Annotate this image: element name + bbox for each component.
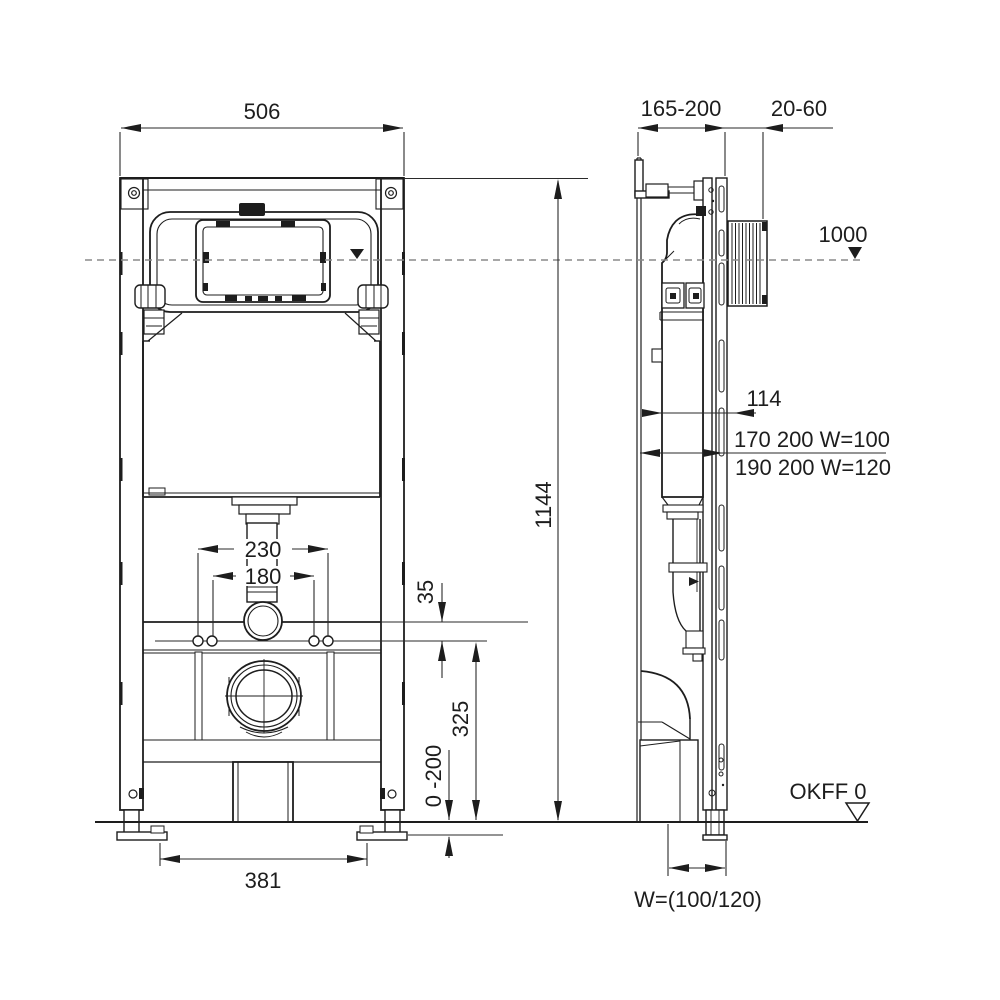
front-view [117,178,528,840]
frame-rail-side [703,178,727,810]
dim-label-outlet-width: W=(100/120) [634,887,762,912]
level-marker-icon [848,247,862,259]
corner-screw-icon [129,188,397,199]
dim-label-foot-adjust: 0 -200 [421,745,446,807]
dim-label-spacing-inner: 180 [245,564,282,589]
access-window [150,203,378,312]
spec-line-2: 190 200 W=120 [735,455,891,480]
wall-spacer-ribbed-block [728,221,767,306]
drain-socket [225,659,303,737]
foot-side [703,810,727,840]
level-marker-icon [350,249,364,259]
cistern-body [143,313,380,497]
dim-label-wall-gap: 20-60 [771,96,827,121]
flush-pipe-side [662,497,707,661]
floor-datum-icon [846,803,869,821]
dim-label-drain-height: 325 [448,701,473,738]
dim-label-front-height: 1144 [531,481,556,528]
bottom-crossbar [143,740,381,822]
dim-label-front-width: 506 [244,99,281,124]
dim-label-foot-spacing: 381 [245,868,282,893]
front-view-dimensions: 506 1144 230 180 35 325 [120,99,588,893]
cistern-frame-drawing: 506 1144 230 180 35 325 [0,0,1000,1000]
spec-line-1: 170 200 W=100 [734,427,890,452]
flush-bend [232,497,297,524]
dim-label-actuation-height: 1000 [819,222,868,247]
dim-label-depth: 165-200 [641,96,722,121]
flow-marker-icon [689,577,699,586]
reference-lines [85,247,869,822]
drain-bend-side [638,671,698,822]
dim-label-depth-inner: 114 [746,386,781,411]
floor-reference-label: OKFF 0 [789,779,866,804]
dim-label-spacing-outer: 230 [245,537,282,562]
technical-drawing-page: 506 1144 230 180 35 325 [0,0,1000,1000]
dim-label-offset: 35 [413,580,438,604]
wall-bracket [635,160,704,200]
